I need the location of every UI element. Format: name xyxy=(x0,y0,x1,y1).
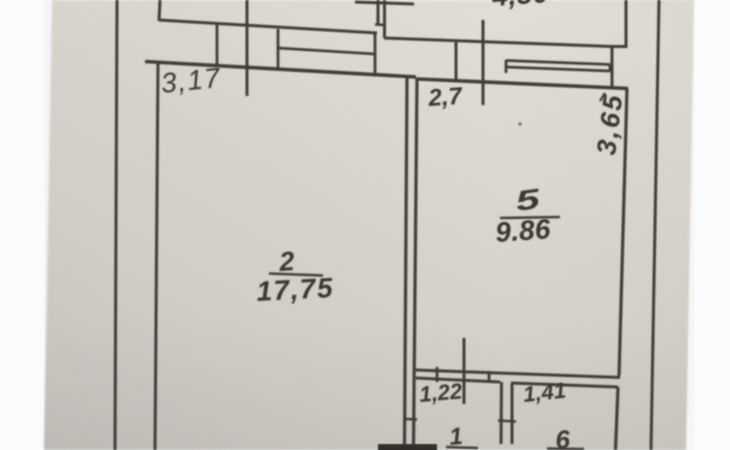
svg-text:1: 1 xyxy=(448,423,464,450)
svg-text:2,7: 2,7 xyxy=(427,83,465,112)
svg-text:5: 5 xyxy=(514,183,543,217)
svg-text:3,17: 3,17 xyxy=(159,62,222,99)
svg-text:6: 6 xyxy=(554,424,571,450)
svg-text:1,22: 1,22 xyxy=(418,378,464,407)
svg-text:9.86: 9.86 xyxy=(494,213,551,248)
svg-text:1,41: 1,41 xyxy=(522,378,567,407)
svg-text:2: 2 xyxy=(277,246,295,277)
svg-text:17,75: 17,75 xyxy=(256,272,334,307)
